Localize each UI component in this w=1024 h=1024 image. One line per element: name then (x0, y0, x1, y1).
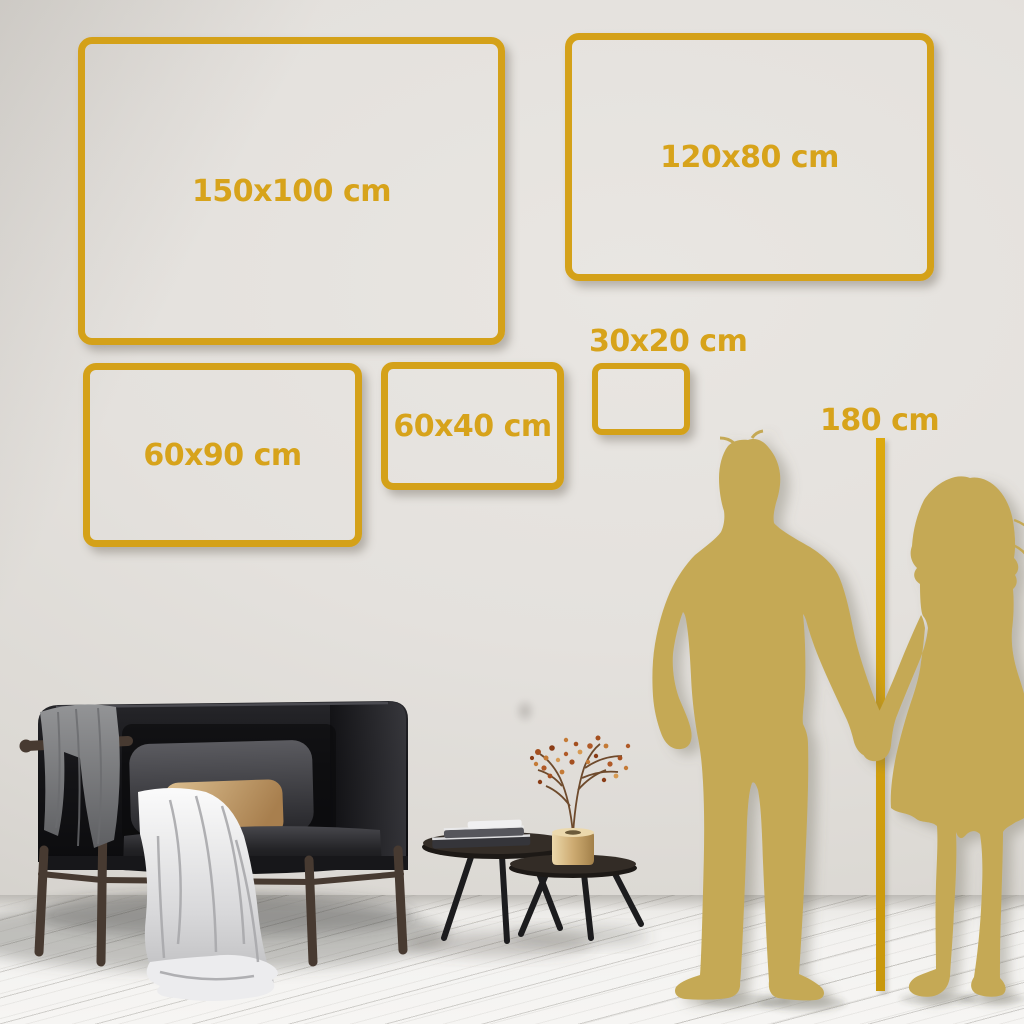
couple-silhouette (652, 431, 1024, 1000)
book-stack (432, 819, 531, 848)
nesting-tables (422, 736, 641, 942)
man-silhouette (652, 439, 887, 1000)
size-comparison-mockup: 150x100 cm 120x80 cm 60x90 cm 60x40 cm 3… (0, 0, 1024, 1024)
dried-branch (538, 744, 622, 834)
brass-vase-opening (565, 830, 581, 834)
branch-berries (530, 736, 630, 785)
woman-silhouette (862, 476, 1024, 996)
scene-artwork (0, 0, 1024, 1024)
